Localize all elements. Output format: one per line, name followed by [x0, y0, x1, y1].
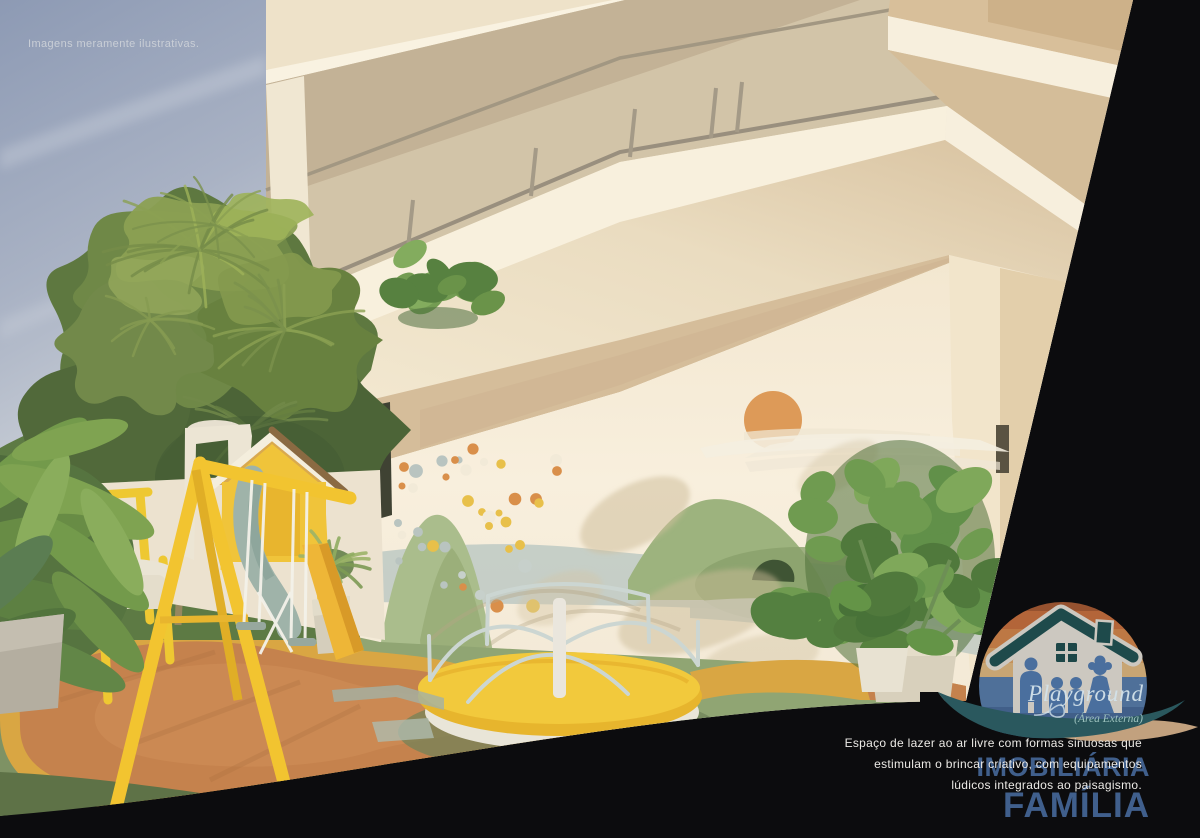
- svg-text:(Área Externa): (Área Externa): [1074, 711, 1143, 725]
- svg-text:Playground: Playground: [1027, 681, 1144, 706]
- svg-text:lúdicos integrados ao paisagis: lúdicos integrados ao paisagismo.: [951, 778, 1142, 792]
- svg-text:Imagens meramente ilustrativas: Imagens meramente ilustrativas.: [28, 38, 199, 50]
- svg-text:estimulam o brincar criativo,: estimulam o brincar criativo, com equipa…: [874, 757, 1142, 771]
- svg-text:Espaço de lazer ao ar livre co: Espaço de lazer ao ar livre com formas s…: [845, 736, 1142, 750]
